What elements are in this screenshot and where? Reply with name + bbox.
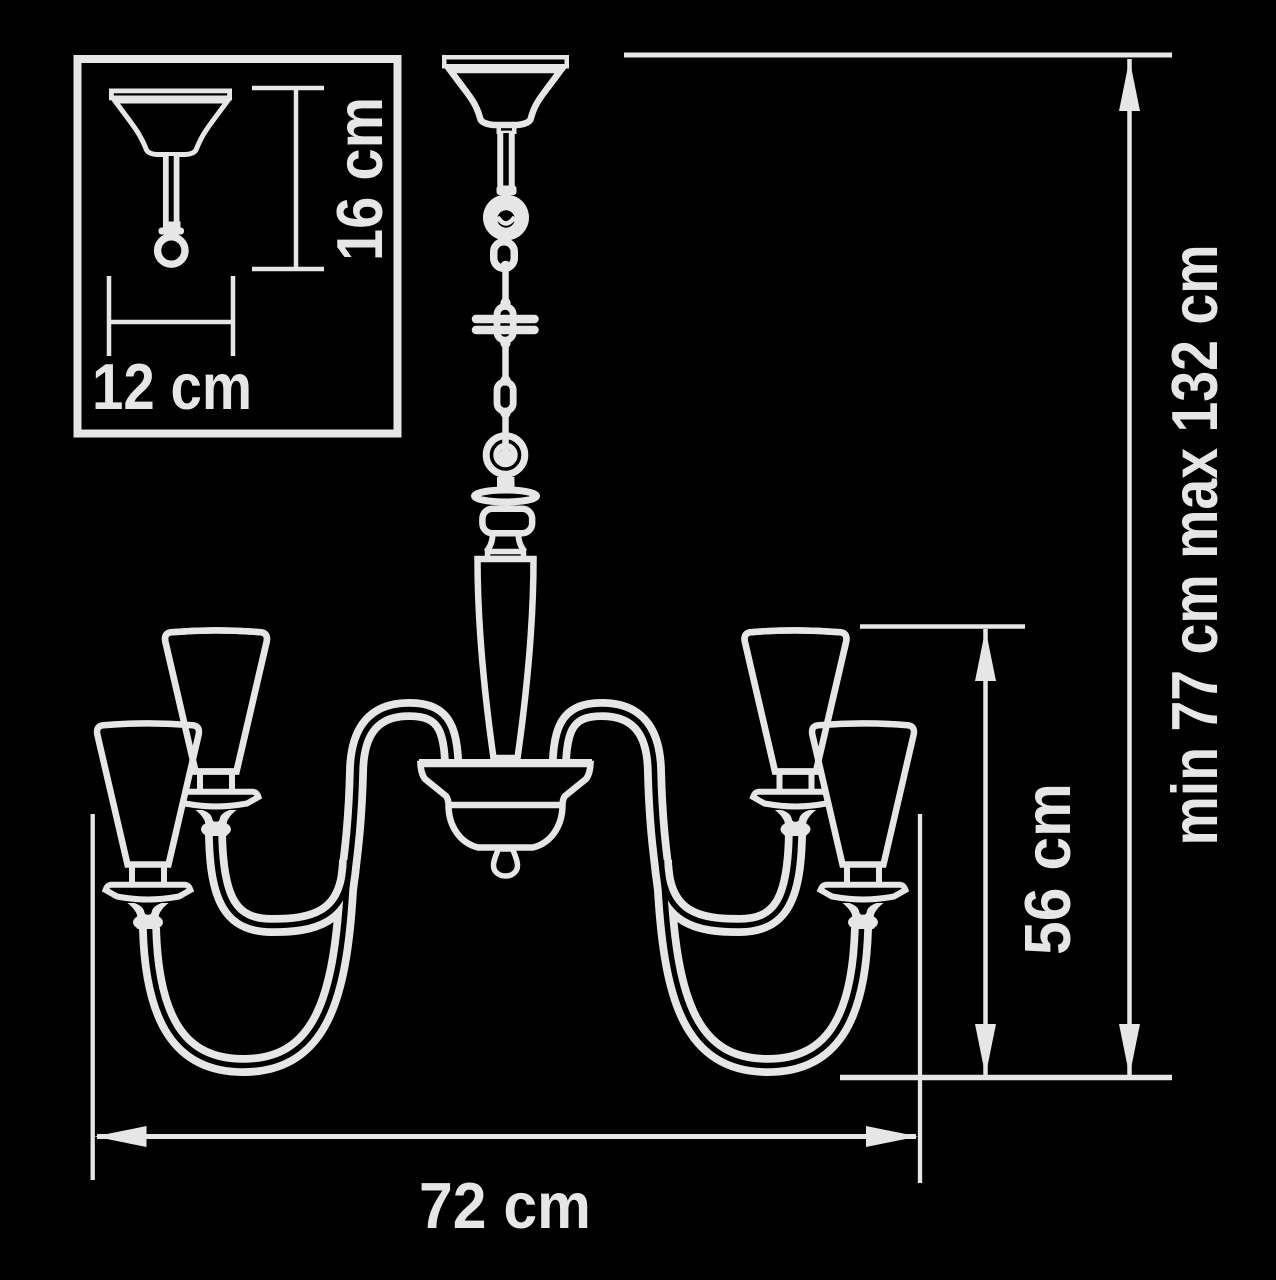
svg-text:72 cm: 72 cm bbox=[419, 1170, 591, 1242]
svg-text:16 cm: 16 cm bbox=[324, 97, 396, 261]
svg-text:56 cm: 56 cm bbox=[1012, 783, 1084, 955]
svg-text:12 cm: 12 cm bbox=[92, 351, 252, 423]
svg-text:min 77 cm max 132 cm: min 77 cm max 132 cm bbox=[1159, 245, 1231, 846]
